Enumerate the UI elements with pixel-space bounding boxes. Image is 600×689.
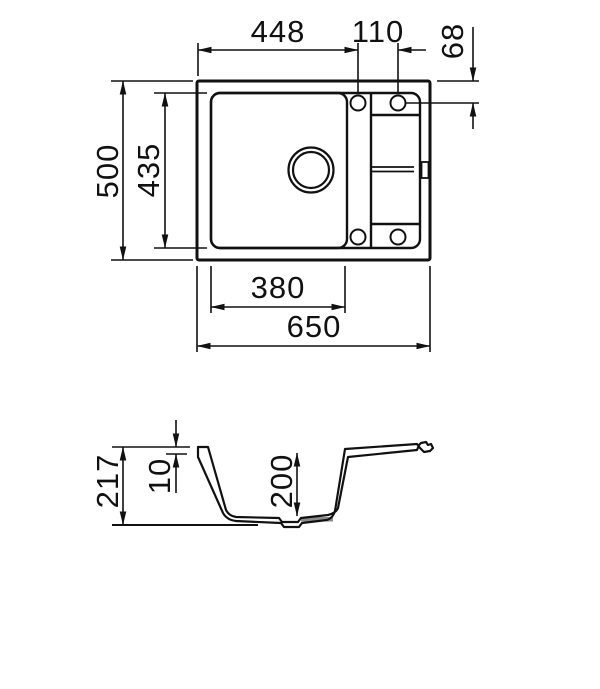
bowl-outline: [211, 93, 347, 248]
tap-hole-top-left: [351, 96, 366, 111]
top-view-labels: 448 110 68 500 435 380 650: [90, 14, 470, 344]
dim-label-435: 435: [131, 143, 166, 198]
dimension-448: [198, 43, 358, 94]
dim-label-110: 110: [352, 14, 404, 49]
section-view-labels: 217 10 200: [90, 454, 299, 509]
sink-section-profile: [198, 442, 433, 527]
dim-label-500: 500: [90, 144, 125, 199]
drain-outer-circle: [289, 148, 334, 193]
tap-hole-top-right: [391, 96, 406, 111]
dim-label-217: 217: [90, 454, 125, 509]
dim-label-200: 200: [264, 454, 299, 509]
dim-label-68: 68: [435, 23, 470, 59]
dim-label-10: 10: [142, 458, 177, 494]
overflow-notch: [422, 162, 429, 178]
dimension-110: [398, 43, 426, 94]
dim-label-380: 380: [251, 270, 306, 305]
dim-label-650: 650: [287, 309, 342, 344]
dim-label-448: 448: [251, 14, 306, 49]
drawing-canvas: 448 110 68 500 435 380 650 217: [0, 0, 600, 689]
tap-hole-bottom-right: [391, 230, 406, 245]
sink-dimension-drawing: 448 110 68 500 435 380 650 217: [0, 0, 600, 689]
tap-hole-bottom-left: [351, 230, 366, 245]
drain-inner-circle: [293, 152, 329, 188]
sink-outer-outline: [197, 81, 430, 260]
